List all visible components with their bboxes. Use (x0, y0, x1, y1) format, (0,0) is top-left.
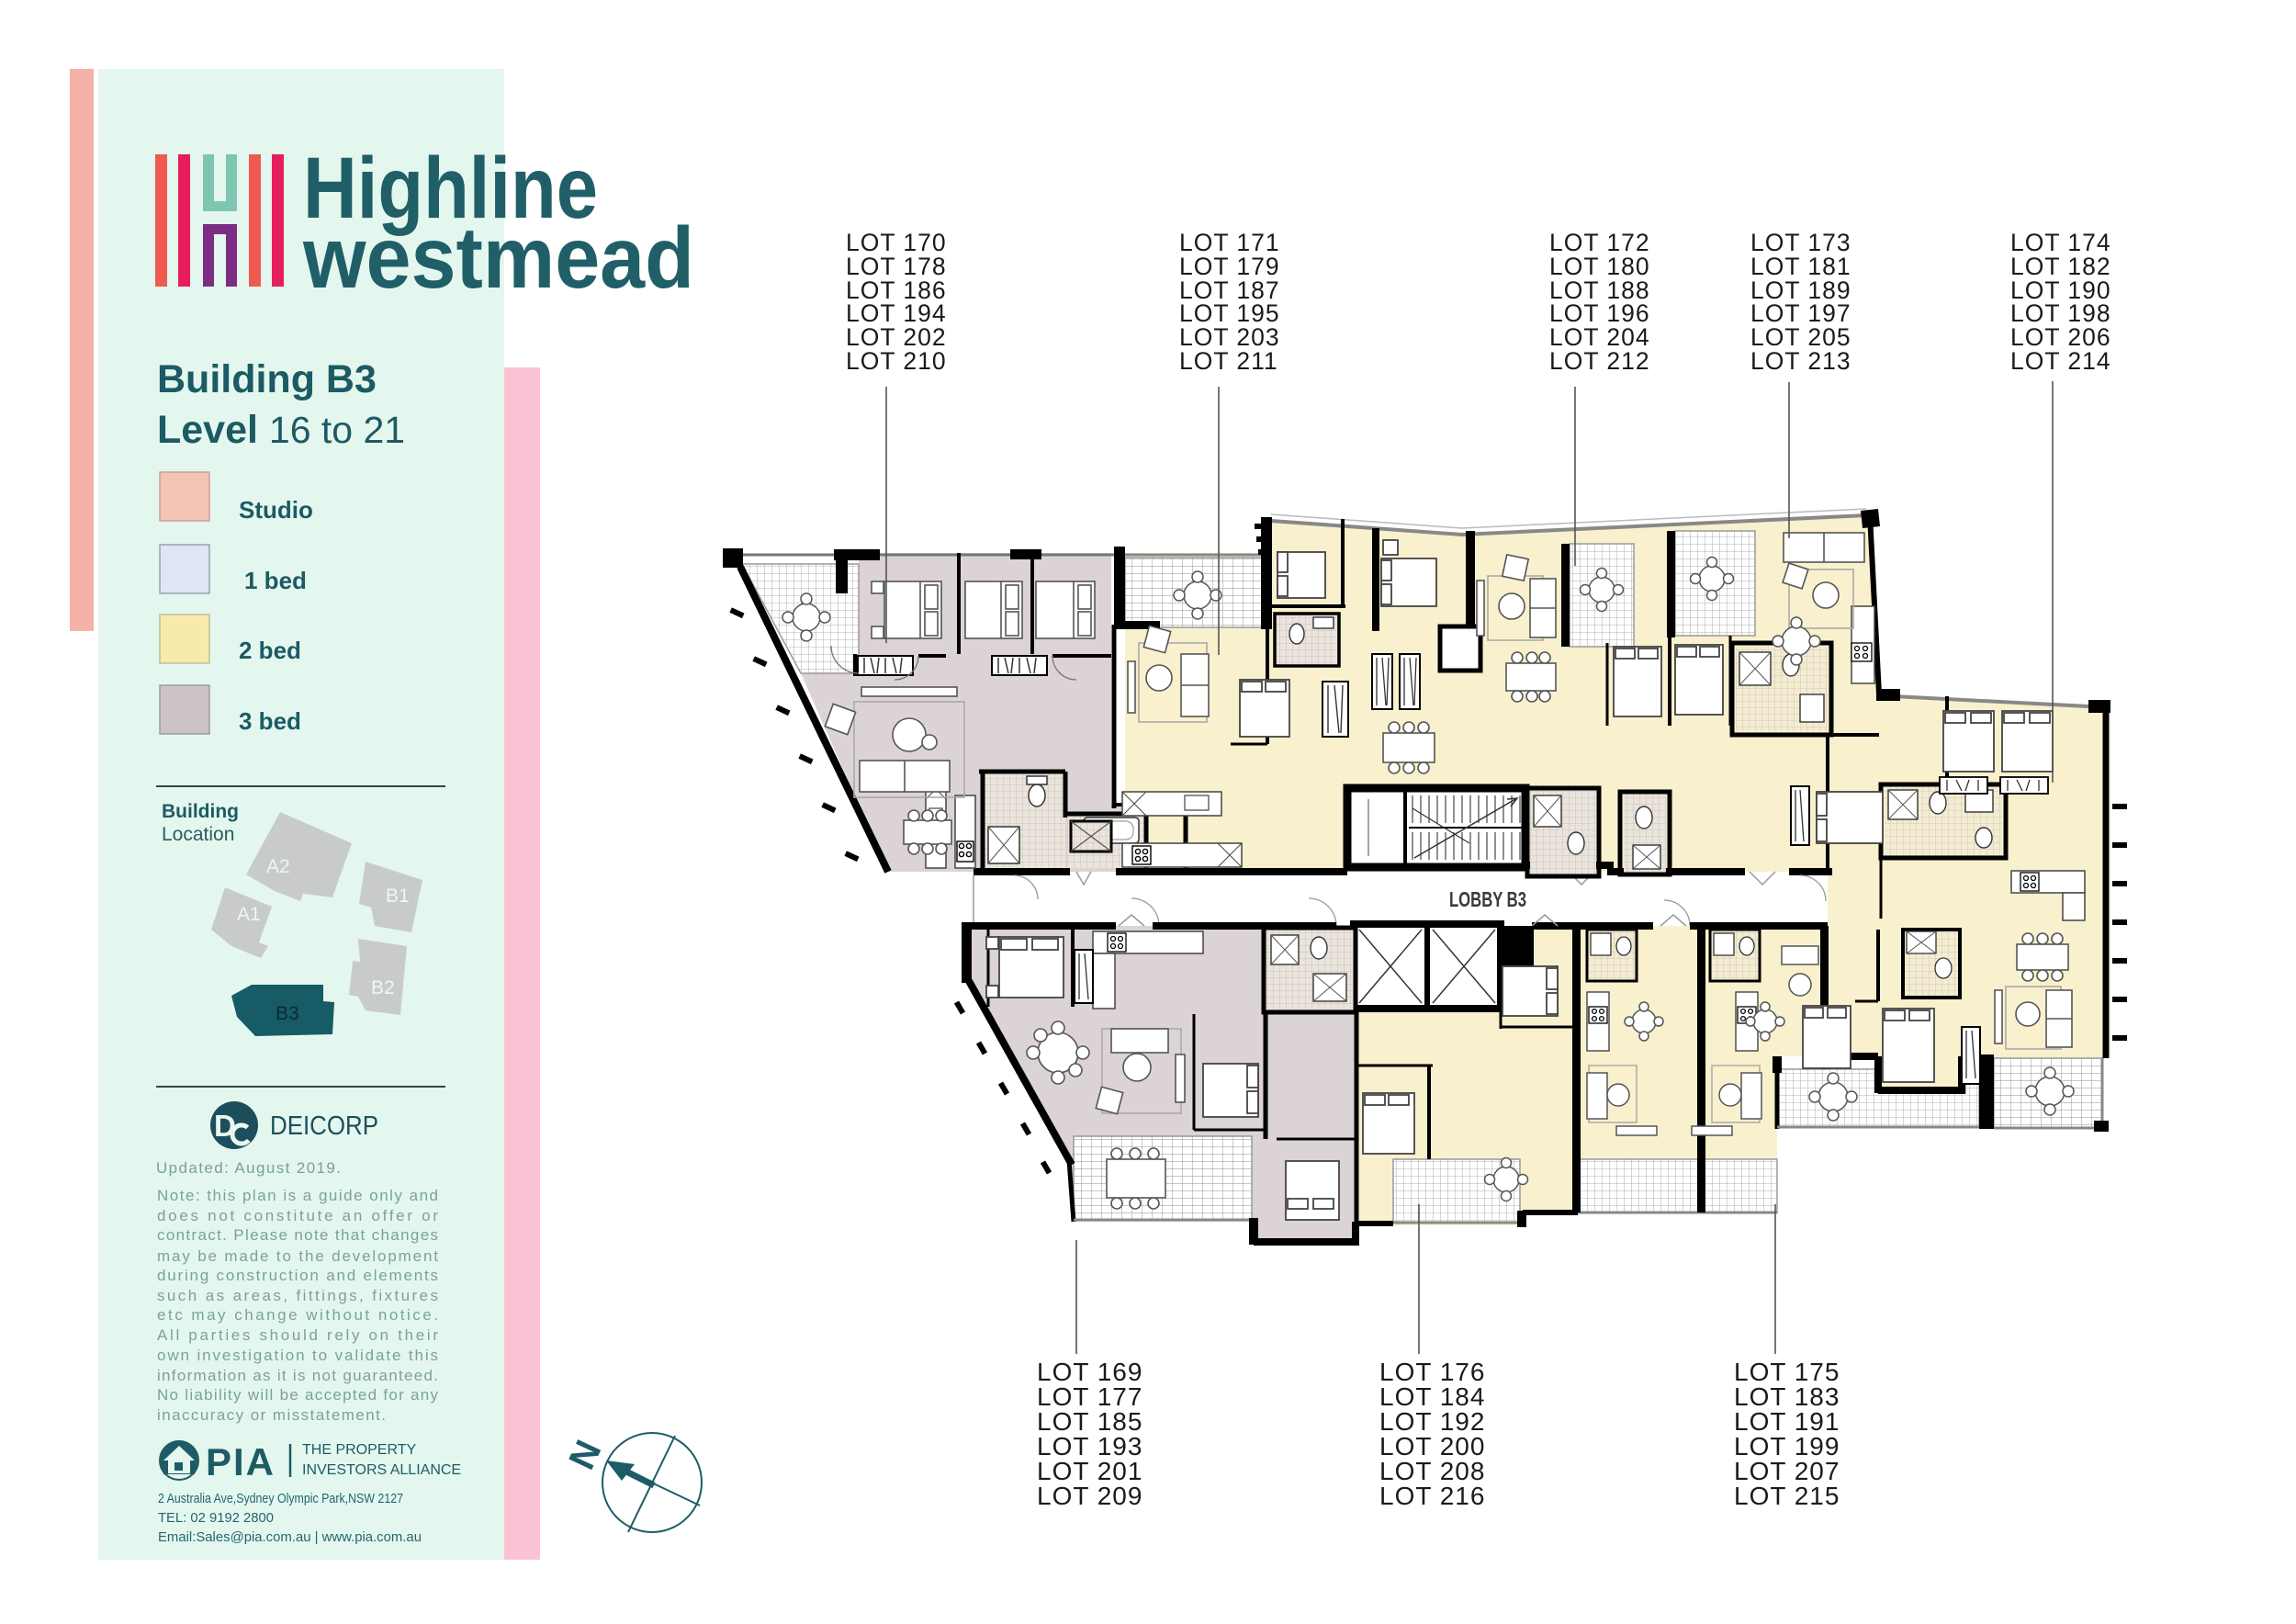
svg-text:Studio: Studio (239, 496, 313, 524)
svg-text:A1: A1 (237, 904, 261, 925)
svg-text:B3: B3 (276, 1003, 299, 1024)
svg-text:A2: A2 (266, 856, 290, 877)
svg-text:2 Australia Ave,Sydney Olympic: 2 Australia Ave,Sydney Olympic Park,NSW … (158, 1491, 403, 1506)
svg-text:LOBBY B3: LOBBY B3 (1449, 887, 1526, 911)
svg-text:Email:Sales@pia.com.au | www: Email:Sales@pia.com.au | www.pia.com.au (158, 1529, 422, 1545)
svg-text:Building: Building (162, 801, 239, 822)
svg-text:Note: this plan is a guide onl: Note: this plan is a guide only and (157, 1187, 438, 1204)
svg-text:LOT 215: LOT 215 (1734, 1482, 1840, 1510)
svg-text:LOT 210: LOT 210 (846, 347, 947, 375)
svg-text:LOT 211: LOT 211 (1179, 347, 1278, 375)
svg-text:contract. Please note that cha: contract. Please note that changes (157, 1226, 438, 1244)
svg-text:information as it is not guara: information as it is not guaranteed. (157, 1367, 438, 1384)
svg-text:LOT 213: LOT 213 (1750, 347, 1851, 375)
svg-text:Level 16 to 21: Level 16 to 21 (157, 408, 405, 452)
svg-text:3 bed: 3 bed (239, 707, 301, 735)
svg-text:INVESTORS ALLIANCE: INVESTORS ALLIANCE (302, 1462, 461, 1478)
svg-text:TEL: 02 9192 2800: TEL: 02 9192 2800 (158, 1510, 274, 1526)
svg-text:2 bed: 2 bed (239, 637, 301, 664)
svg-text:No liability will be accepted: No liability will be accepted for any (157, 1386, 439, 1404)
svg-text:Location: Location (162, 824, 234, 845)
svg-text:B1: B1 (386, 885, 410, 907)
svg-text:own investigation to validate: own investigation to validate this (157, 1347, 438, 1364)
svg-text:LOT 209: LOT 209 (1037, 1482, 1142, 1510)
svg-text:such as areas, fittings, fixtu: such as areas, fittings, fixtures (157, 1287, 438, 1304)
svg-text:PIA: PIA (206, 1440, 276, 1483)
svg-text:LOT 214: LOT 214 (2010, 347, 2111, 375)
svg-text:LOT 216: LOT 216 (1379, 1482, 1485, 1510)
svg-text:THE PROPERTY: THE PROPERTY (302, 1442, 417, 1458)
svg-text:westmead: westmead (302, 209, 694, 307)
svg-text:Updated: August 2019.: Updated: August 2019. (156, 1159, 341, 1177)
svg-text:Building B3: Building B3 (157, 357, 377, 401)
svg-text:LOT 212: LOT 212 (1549, 347, 1650, 375)
svg-text:1 bed: 1 bed (244, 567, 307, 594)
svg-text:B2: B2 (371, 977, 395, 998)
svg-text:DEICORP: DEICORP (270, 1111, 378, 1141)
svg-text:during construction and elemen: during construction and elements (157, 1267, 438, 1284)
